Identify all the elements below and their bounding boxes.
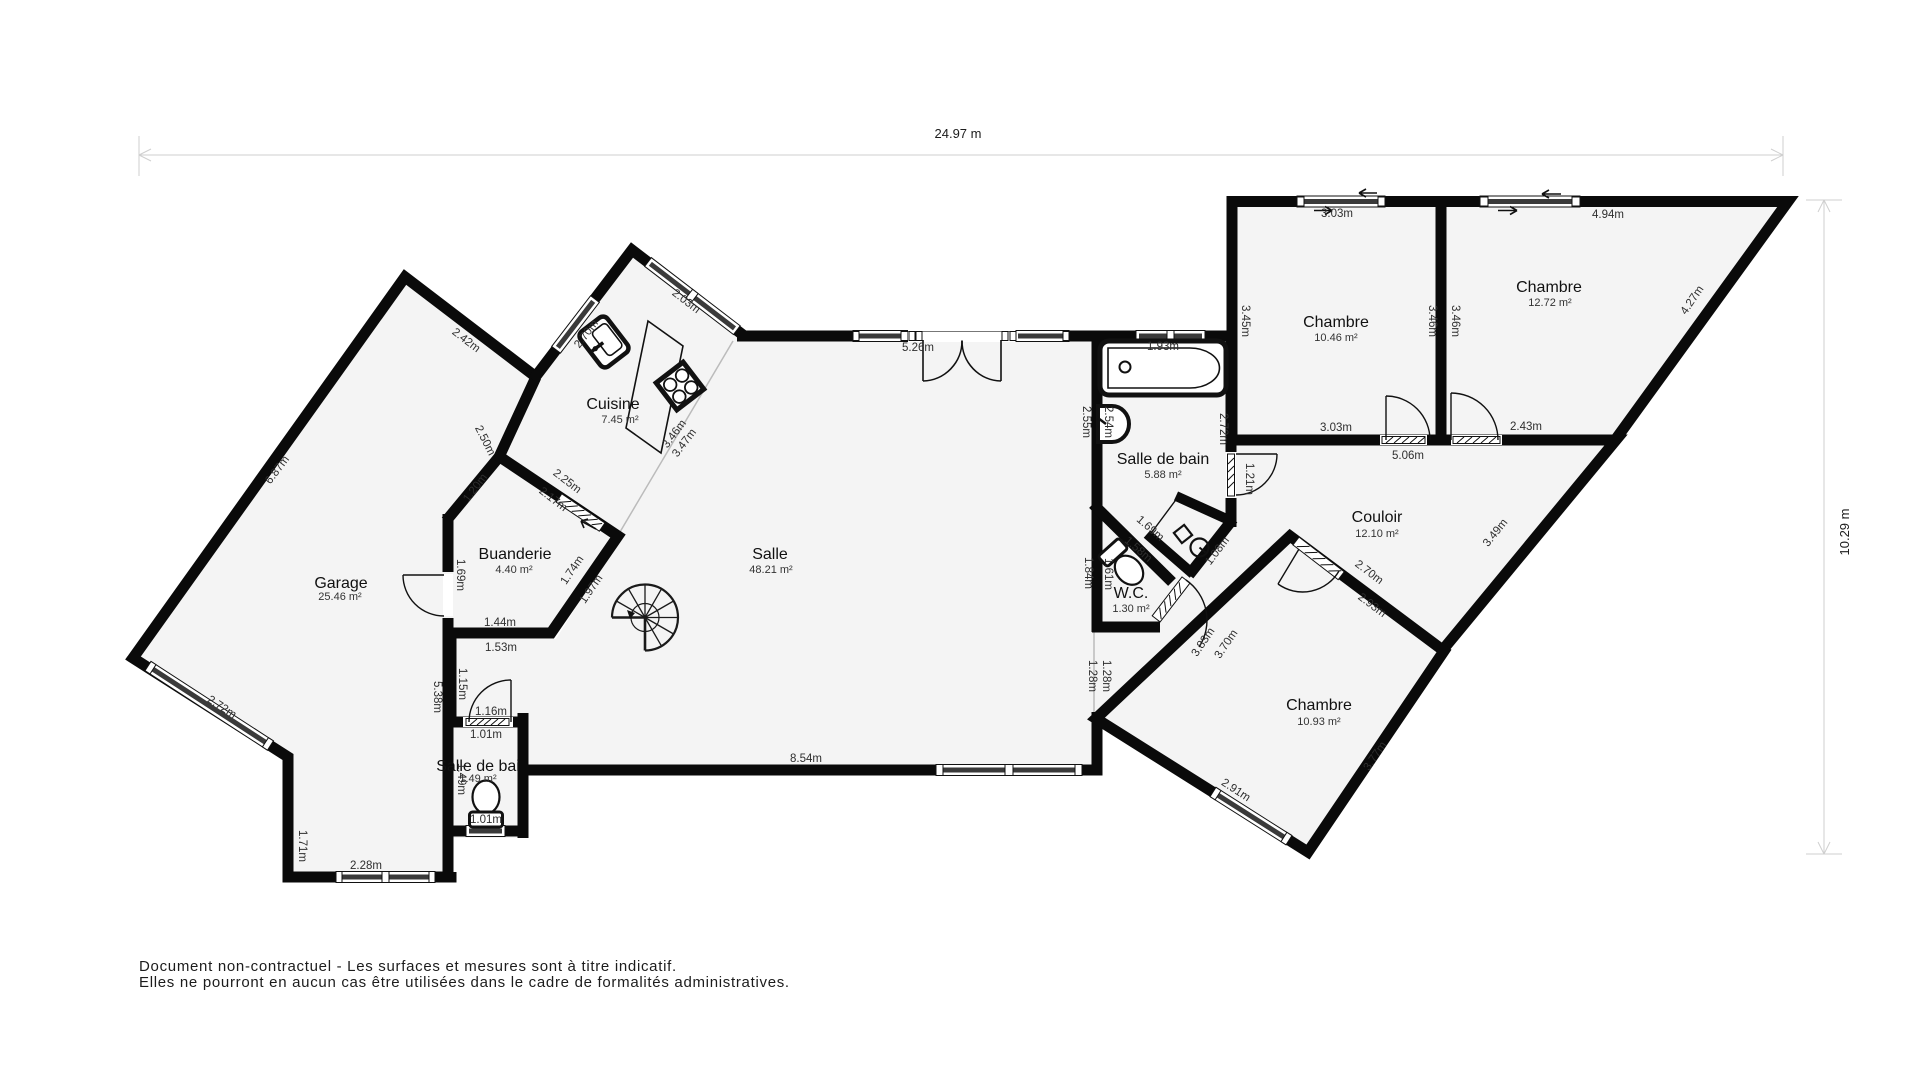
svg-text:1.28m: 1.28m <box>1086 660 1098 692</box>
svg-text:Elles ne pourront en aucun cas: Elles ne pourront en aucun cas être util… <box>139 974 790 991</box>
svg-text:1.01m: 1.01m <box>470 729 502 741</box>
svg-text:5.06m: 5.06m <box>1392 450 1424 462</box>
svg-text:2.54m: 2.54m <box>1102 406 1114 438</box>
svg-text:1.44m: 1.44m <box>484 617 516 629</box>
svg-text:1.93m: 1.93m <box>1147 341 1179 353</box>
svg-text:2.43m: 2.43m <box>1510 421 1542 433</box>
svg-text:4.40 m²: 4.40 m² <box>495 564 533 576</box>
svg-text:Chambre: Chambre <box>1303 314 1369 331</box>
svg-text:3.46m: 3.46m <box>1449 305 1461 337</box>
svg-text:10.29 m: 10.29 m <box>1837 509 1852 556</box>
svg-text:1.15m: 1.15m <box>456 668 468 700</box>
svg-text:Salle: Salle <box>752 546 788 563</box>
svg-text:1.28m: 1.28m <box>1100 660 1112 692</box>
svg-text:48.21 m²: 48.21 m² <box>749 564 793 576</box>
svg-text:5.38m: 5.38m <box>431 681 443 713</box>
svg-text:Cuisine: Cuisine <box>586 396 639 413</box>
svg-text:2.72m: 2.72m <box>1217 413 1229 445</box>
svg-text:5.26m: 5.26m <box>902 342 934 354</box>
svg-text:1.01m: 1.01m <box>470 814 502 826</box>
svg-text:1.16m: 1.16m <box>475 706 507 718</box>
svg-text:10.46 m²: 10.46 m² <box>1314 332 1358 344</box>
svg-text:1.69m: 1.69m <box>454 559 466 591</box>
svg-text:24.97 m: 24.97 m <box>935 126 982 141</box>
svg-text:Chambre: Chambre <box>1516 279 1582 296</box>
svg-text:1.21m: 1.21m <box>1243 463 1255 495</box>
svg-text:1.71m: 1.71m <box>296 830 308 862</box>
svg-text:10.93 m²: 10.93 m² <box>1297 716 1341 728</box>
svg-text:Buanderie: Buanderie <box>479 546 552 563</box>
svg-text:12.10 m²: 12.10 m² <box>1355 528 1399 540</box>
svg-text:1.61m: 1.61m <box>1102 558 1114 590</box>
svg-text:Chambre: Chambre <box>1286 697 1352 714</box>
svg-text:Couloir: Couloir <box>1352 509 1403 526</box>
svg-text:8.54m: 8.54m <box>790 753 822 765</box>
svg-text:25.46 m²: 25.46 m² <box>318 591 362 603</box>
svg-text:3.03m: 3.03m <box>1320 422 1352 434</box>
svg-text:2.55m: 2.55m <box>1080 406 1092 438</box>
svg-text:Document non-contractuel - Les: Document non-contractuel - Les surfaces … <box>139 958 677 975</box>
svg-text:W.C.: W.C. <box>1114 585 1149 602</box>
svg-text:12.72 m²: 12.72 m² <box>1528 297 1572 309</box>
svg-text:1.49m: 1.49m <box>455 763 467 795</box>
svg-text:Garage: Garage <box>314 575 367 592</box>
svg-text:1.53m: 1.53m <box>485 642 517 654</box>
svg-text:3.46m: 3.46m <box>1426 305 1438 337</box>
svg-text:7.45 m²: 7.45 m² <box>601 414 639 426</box>
svg-text:Salle de bain: Salle de bain <box>1117 451 1210 468</box>
svg-text:2.28m: 2.28m <box>350 860 382 872</box>
svg-text:4.94m: 4.94m <box>1592 209 1624 221</box>
svg-text:3.03m: 3.03m <box>1321 208 1353 220</box>
svg-text:1.84m: 1.84m <box>1082 557 1094 589</box>
svg-text:5.88 m²: 5.88 m² <box>1144 469 1182 481</box>
svg-text:3.45m: 3.45m <box>1239 305 1251 337</box>
svg-text:1.30 m²: 1.30 m² <box>1112 603 1150 615</box>
